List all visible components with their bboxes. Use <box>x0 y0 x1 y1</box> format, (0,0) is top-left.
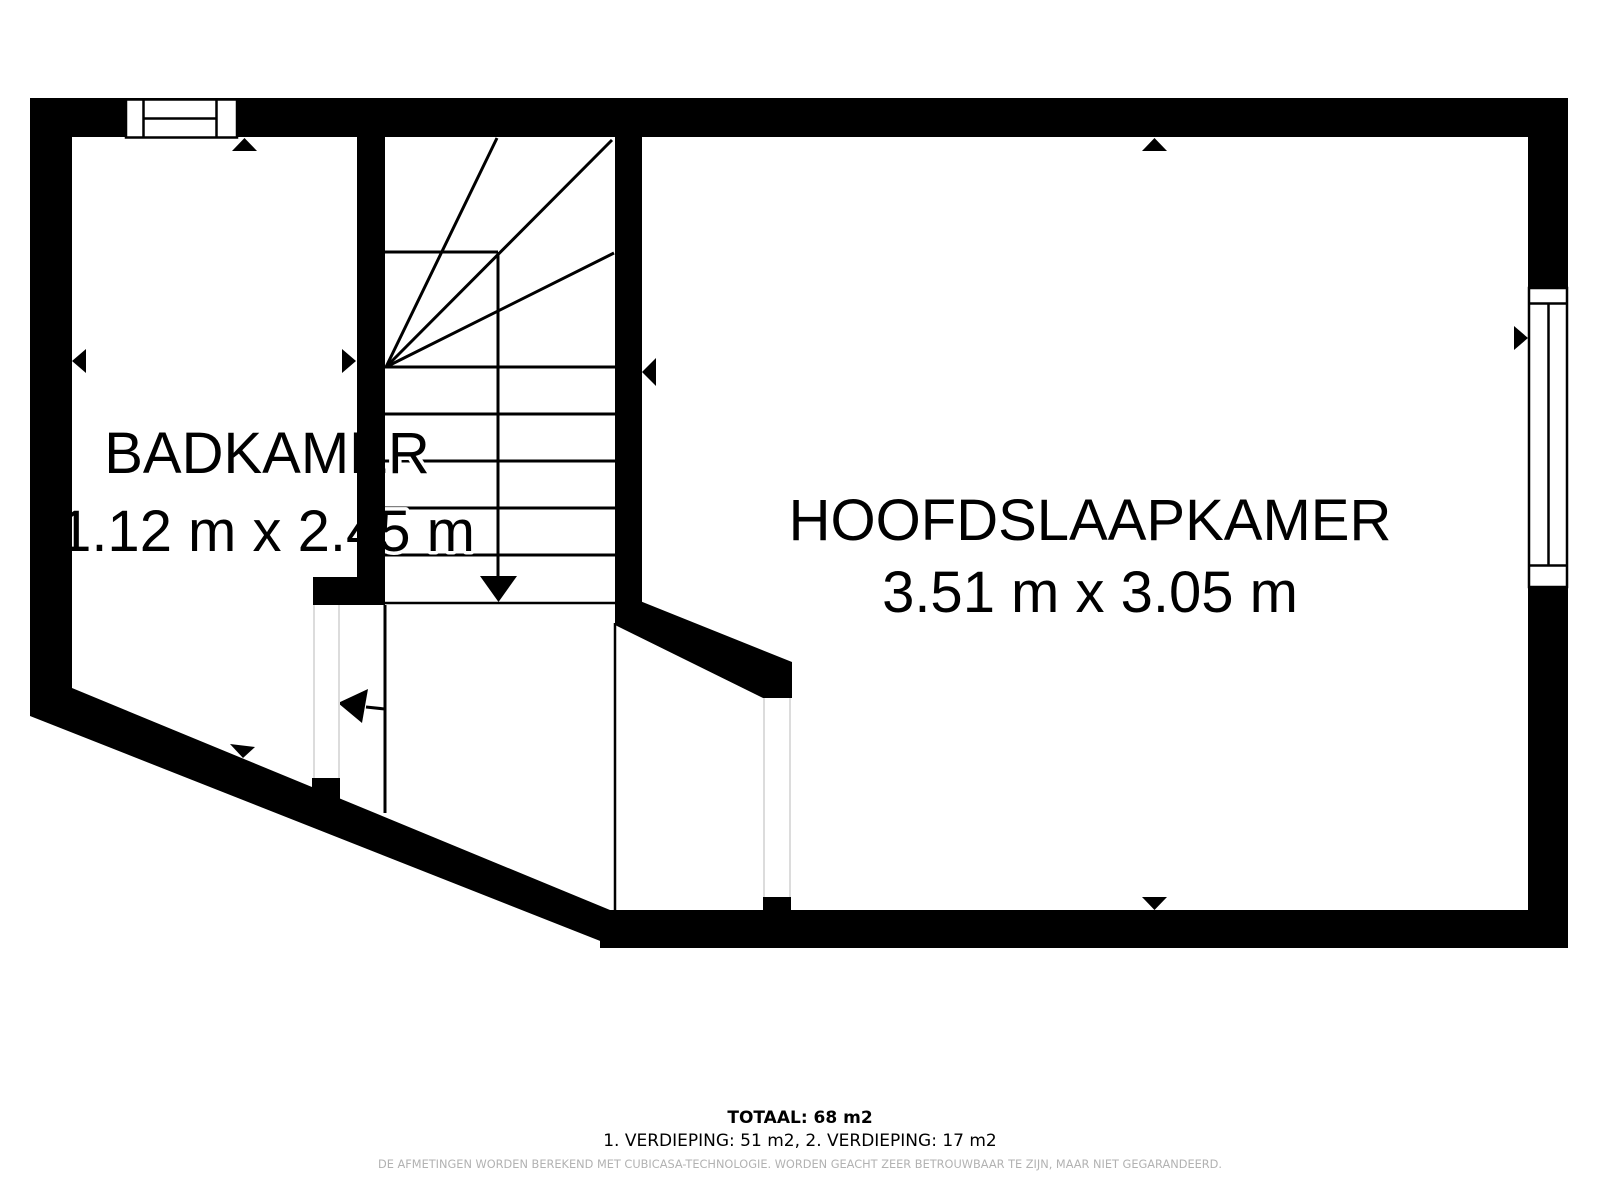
door-jamb-bedroom-bottom <box>763 897 791 911</box>
window-right <box>1529 288 1567 587</box>
wall-bathroom-stairs <box>357 137 385 605</box>
floorplan-page: BADKAMER 1.12 m x 2.45 m HOOFDSLAAPKAMER… <box>0 0 1600 1200</box>
window-top <box>126 100 237 138</box>
door-jamb-top <box>313 577 385 605</box>
wall-left <box>30 98 72 716</box>
total-area-text: TOTAAL: 68 m2 <box>727 1108 872 1128</box>
wall-stairs-right <box>615 137 642 623</box>
room-dimensions-hoofdslaapkamer: 3.51 m x 3.05 m <box>882 560 1298 625</box>
room-label-hoofdslaapkamer: HOOFDSLAAPKAMER <box>789 488 1392 553</box>
disclaimer-text: DE AFMETINGEN WORDEN BEREKEND MET CUBICA… <box>378 1157 1222 1171</box>
room-dimensions-badkamer: 1.12 m x 2.45 m <box>59 499 475 564</box>
floorplan-svg: BADKAMER 1.12 m x 2.45 m HOOFDSLAAPKAMER… <box>0 0 1600 1200</box>
background <box>0 0 1600 1200</box>
door-swing-arrow <box>366 707 385 709</box>
wall-top <box>30 98 1568 137</box>
door-jamb-bottom <box>312 778 340 813</box>
wall-bottom <box>600 910 1568 948</box>
floor-areas-text: 1. VERDIEPING: 51 m2, 2. VERDIEPING: 17 … <box>603 1131 997 1151</box>
